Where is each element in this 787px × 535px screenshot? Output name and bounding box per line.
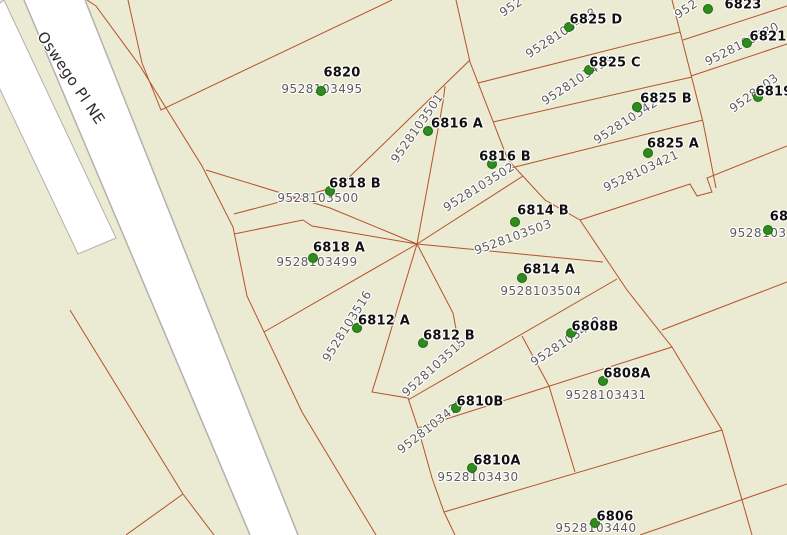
address-label: 6818 A [313,241,365,256]
parcel-number-label: 9528103430 [437,470,518,484]
address-label: 6825 A [647,137,699,152]
address-label: 6812 A [358,314,410,329]
address-label: 6818 B [329,177,381,192]
address-label: 6806 [597,510,634,525]
address-label: 6810A [473,454,520,469]
parcel-number-label: 9528103504 [500,284,581,298]
address-label: 6808A [603,367,650,382]
address-label: 6814 A [523,263,575,278]
map-canvas[interactable]: Oswego Pl NE 682095281034956816 A9528103… [0,0,787,535]
parcel-number-label: 9528103 [730,226,787,240]
address-label: 6823 [725,0,762,13]
address-label: 6820 [324,66,361,81]
address-label: 6812 B [423,329,475,344]
address-label: 6814 B [517,204,569,219]
address-label: 68 [770,210,787,225]
address-label: 6821 [750,30,787,45]
address-label: 6819 [756,85,787,100]
map-base-layer [0,0,787,535]
address-point-dot[interactable] [703,4,713,14]
address-point-dot[interactable] [763,225,773,235]
address-label: 6825 C [589,56,640,71]
address-point-dot[interactable] [316,86,326,96]
address-label: 6825 B [640,92,692,107]
parcel-number-label: 9528103500 [277,191,358,205]
address-label: 6816 A [431,117,483,132]
address-point-dot[interactable] [510,217,520,227]
address-label: 6810B [456,395,503,410]
address-label: 6816 B [479,150,531,165]
parcel-number-label: 9528103431 [565,388,646,402]
address-label: 6808B [571,320,618,335]
address-label: 6825 D [570,13,623,28]
